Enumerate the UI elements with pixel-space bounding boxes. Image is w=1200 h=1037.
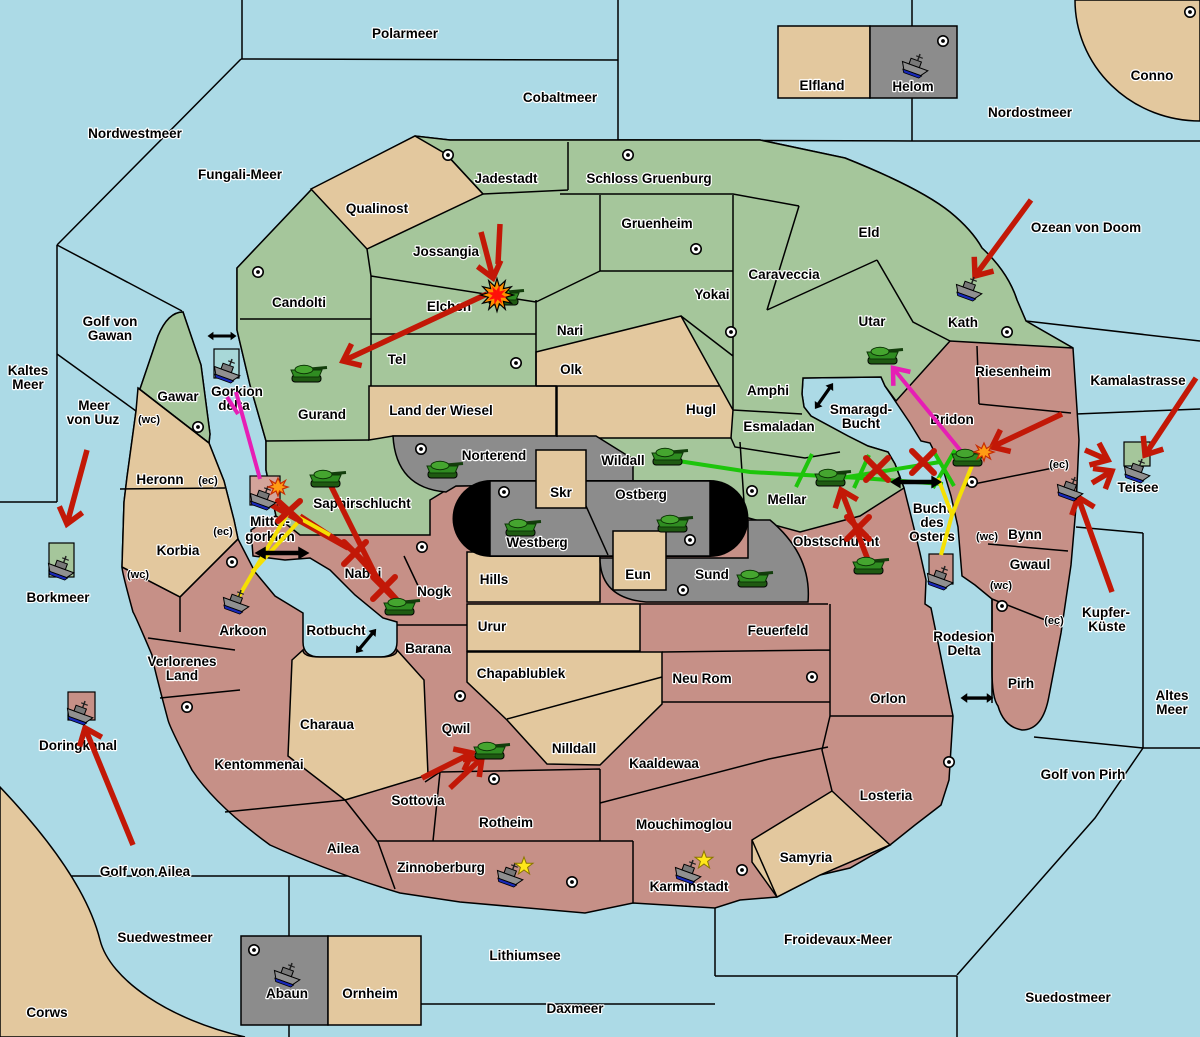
- svg-text:Mouchimoglou: Mouchimoglou: [636, 817, 732, 832]
- svg-text:Daxmeer: Daxmeer: [546, 1001, 604, 1016]
- svg-text:(wc): (wc): [127, 569, 149, 581]
- svg-text:Kaltes: Kaltes: [8, 363, 49, 378]
- svg-text:Rotheim: Rotheim: [479, 815, 533, 830]
- svg-text:Ostberg: Ostberg: [615, 487, 667, 502]
- svg-text:Jadestadt: Jadestadt: [474, 171, 538, 186]
- svg-text:(ec): (ec): [1049, 459, 1069, 471]
- svg-text:Rodesion: Rodesion: [933, 629, 995, 644]
- svg-text:Ailea: Ailea: [327, 841, 360, 856]
- svg-text:Saphirschlucht: Saphirschlucht: [313, 496, 411, 511]
- svg-text:Nordostmeer: Nordostmeer: [988, 105, 1073, 120]
- svg-text:Wildall: Wildall: [601, 453, 644, 468]
- svg-text:Ozean von Doom: Ozean von Doom: [1031, 220, 1141, 235]
- svg-text:Pirh: Pirh: [1008, 676, 1034, 691]
- svg-text:Orlon: Orlon: [870, 691, 906, 706]
- svg-text:Utar: Utar: [858, 314, 886, 329]
- svg-text:Nari: Nari: [557, 323, 583, 338]
- svg-text:Meer: Meer: [1156, 702, 1188, 717]
- svg-text:Cobaltmeer: Cobaltmeer: [523, 90, 598, 105]
- svg-text:Altes: Altes: [1155, 688, 1188, 703]
- svg-text:Losteria: Losteria: [860, 788, 913, 803]
- svg-text:Rotbucht: Rotbucht: [306, 623, 366, 638]
- svg-text:Kupfer-: Kupfer-: [1082, 605, 1130, 620]
- svg-text:Polarmeer: Polarmeer: [372, 26, 439, 41]
- svg-text:Heronn: Heronn: [136, 472, 183, 487]
- svg-text:Bucht: Bucht: [842, 416, 881, 431]
- svg-text:Suedostmeer: Suedostmeer: [1025, 990, 1111, 1005]
- svg-text:Doringkanal: Doringkanal: [39, 738, 117, 753]
- svg-text:Caraveccia: Caraveccia: [748, 267, 820, 282]
- svg-text:Fungali-Meer: Fungali-Meer: [198, 167, 283, 182]
- svg-text:Chapablublek: Chapablublek: [477, 666, 566, 681]
- svg-text:Kaaldewaa: Kaaldewaa: [629, 756, 699, 771]
- svg-text:Nogk: Nogk: [417, 584, 451, 599]
- svg-text:Korbia: Korbia: [157, 543, 200, 558]
- svg-text:Jossangia: Jossangia: [413, 244, 480, 259]
- svg-text:Tel: Tel: [388, 352, 407, 367]
- svg-text:Smaragd-: Smaragd-: [830, 402, 892, 417]
- svg-text:Gawar: Gawar: [157, 389, 199, 404]
- svg-text:Mellar: Mellar: [767, 492, 807, 507]
- svg-text:Conno: Conno: [1131, 68, 1174, 83]
- svg-text:Abaun: Abaun: [266, 986, 308, 1001]
- svg-text:(wc): (wc): [976, 531, 998, 543]
- svg-text:Zinnoberburg: Zinnoberburg: [397, 860, 485, 875]
- svg-text:Sund: Sund: [695, 567, 729, 582]
- svg-text:Eun: Eun: [625, 567, 651, 582]
- svg-text:Hugl: Hugl: [686, 402, 716, 417]
- svg-text:Amphi: Amphi: [747, 383, 789, 398]
- svg-text:Golf von: Golf von: [83, 314, 138, 329]
- svg-text:Esmaladan: Esmaladan: [743, 419, 814, 434]
- svg-text:Charaua: Charaua: [300, 717, 355, 732]
- svg-text:Gawan: Gawan: [88, 328, 132, 343]
- svg-text:Golf von Ailea: Golf von Ailea: [100, 864, 191, 879]
- svg-text:Olk: Olk: [560, 362, 582, 377]
- svg-text:Kentommenai: Kentommenai: [214, 757, 303, 772]
- svg-text:Hills: Hills: [480, 572, 509, 587]
- svg-text:Nilldall: Nilldall: [552, 741, 596, 756]
- svg-text:Riesenheim: Riesenheim: [975, 364, 1051, 379]
- svg-text:Norterend: Norterend: [462, 448, 527, 463]
- svg-text:Golf von Pirh: Golf von Pirh: [1041, 767, 1126, 782]
- svg-text:Urur: Urur: [478, 619, 507, 634]
- svg-text:Land: Land: [166, 668, 198, 683]
- svg-text:von Uuz: von Uuz: [67, 412, 120, 427]
- svg-text:Gruenheim: Gruenheim: [621, 216, 692, 231]
- svg-text:Kamalastrasse: Kamalastrasse: [1090, 373, 1186, 388]
- svg-text:Gwaul: Gwaul: [1010, 557, 1051, 572]
- svg-text:(wc): (wc): [138, 414, 160, 426]
- svg-text:Candolti: Candolti: [272, 295, 326, 310]
- svg-text:Skr: Skr: [550, 485, 573, 500]
- svg-text:Küste: Küste: [1088, 619, 1126, 634]
- svg-text:Feuerfeld: Feuerfeld: [748, 623, 809, 638]
- svg-text:Neu Rom: Neu Rom: [672, 671, 731, 686]
- svg-text:Lithiumsee: Lithiumsee: [489, 948, 561, 963]
- svg-text:Suedwestmeer: Suedwestmeer: [117, 930, 213, 945]
- svg-text:Qualinost: Qualinost: [346, 201, 409, 216]
- svg-text:Land der Wiesel: Land der Wiesel: [389, 403, 492, 418]
- svg-text:Helom: Helom: [892, 79, 933, 94]
- svg-text:(wc): (wc): [990, 580, 1012, 592]
- svg-text:Kath: Kath: [948, 315, 978, 330]
- svg-text:Elfland: Elfland: [799, 78, 844, 93]
- svg-text:(ec): (ec): [198, 475, 218, 487]
- svg-text:Corws: Corws: [26, 1005, 67, 1020]
- svg-text:Arkoon: Arkoon: [219, 623, 266, 638]
- svg-text:Westberg: Westberg: [506, 535, 567, 550]
- svg-text:Schloss Gruenburg: Schloss Gruenburg: [586, 171, 711, 186]
- svg-text:(ec): (ec): [213, 526, 233, 538]
- svg-text:des: des: [920, 515, 943, 530]
- svg-text:Ornheim: Ornheim: [342, 986, 398, 1001]
- svg-text:Meer: Meer: [12, 377, 44, 392]
- svg-text:Borkmeer: Borkmeer: [26, 590, 90, 605]
- svg-text:Samyria: Samyria: [780, 850, 833, 865]
- svg-text:Meer: Meer: [78, 398, 110, 413]
- svg-text:Delta: Delta: [947, 643, 981, 658]
- svg-text:Bynn: Bynn: [1008, 527, 1042, 542]
- svg-text:Froidevaux-Meer: Froidevaux-Meer: [784, 932, 893, 947]
- svg-text:Eld: Eld: [858, 225, 879, 240]
- svg-text:Gurand: Gurand: [298, 407, 346, 422]
- svg-text:Yokai: Yokai: [694, 287, 729, 302]
- svg-text:Sottovia: Sottovia: [391, 793, 445, 808]
- svg-text:Verlorenes: Verlorenes: [147, 654, 216, 669]
- svg-text:Barana: Barana: [405, 641, 451, 656]
- svg-text:(ec): (ec): [1044, 615, 1064, 627]
- svg-text:Qwil: Qwil: [442, 721, 471, 736]
- svg-text:Nordwestmeer: Nordwestmeer: [88, 126, 183, 141]
